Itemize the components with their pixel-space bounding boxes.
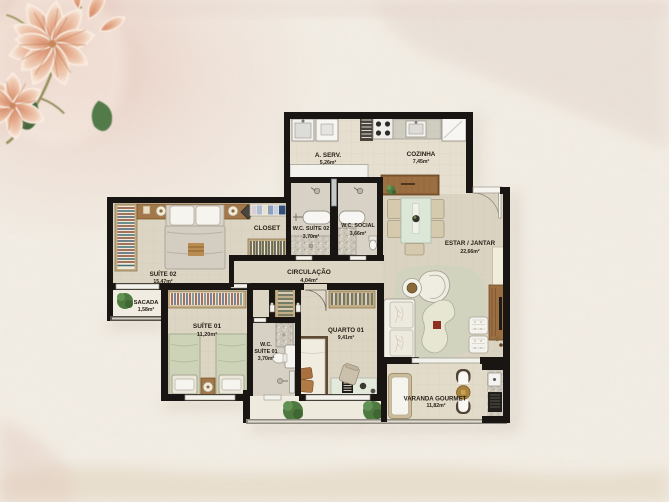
svg-text:QUARTO 01: QUARTO 01 bbox=[328, 327, 364, 334]
svg-text:15,47m²: 15,47m² bbox=[153, 279, 173, 285]
svg-text:A. SERV.: A. SERV. bbox=[315, 152, 342, 159]
svg-text:11,82m²: 11,82m² bbox=[426, 403, 445, 409]
svg-text:3,70m²: 3,70m² bbox=[303, 234, 320, 240]
svg-text:5,26m²: 5,26m² bbox=[320, 160, 337, 166]
svg-text:CIRCULAÇÃO: CIRCULAÇÃO bbox=[287, 267, 331, 276]
svg-text:SUÍTE 01: SUÍTE 01 bbox=[193, 321, 222, 330]
svg-text:11,20m²: 11,20m² bbox=[197, 331, 217, 338]
svg-text:9,41m²: 9,41m² bbox=[338, 335, 355, 341]
svg-text:W.C.: W.C. bbox=[260, 342, 272, 348]
svg-text:W.C. SUÍTE 02: W.C. SUÍTE 02 bbox=[293, 224, 330, 232]
svg-text:CLOSET: CLOSET bbox=[254, 225, 280, 232]
svg-text:COZINHA: COZINHA bbox=[407, 151, 436, 158]
svg-text:1,58m²: 1,58m² bbox=[138, 307, 155, 313]
svg-text:7,45m²: 7,45m² bbox=[413, 159, 430, 165]
svg-text:W.C. SOCIAL: W.C. SOCIAL bbox=[341, 223, 375, 229]
svg-text:SUÍTE 01: SUÍTE 01 bbox=[254, 347, 277, 355]
svg-text:3,70m²: 3,70m² bbox=[258, 356, 275, 362]
svg-text:SACADA: SACADA bbox=[134, 300, 160, 306]
svg-text:22,66m²: 22,66m² bbox=[460, 249, 480, 255]
svg-text:3,66m²: 3,66m² bbox=[350, 231, 367, 237]
svg-text:ESTAR / JANTAR: ESTAR / JANTAR bbox=[445, 240, 496, 247]
svg-text:SUÍTE 02: SUÍTE 02 bbox=[150, 270, 177, 278]
svg-text:4,04m²: 4,04m² bbox=[300, 277, 318, 284]
svg-text:VARANDA GOURMET: VARANDA GOURMET bbox=[404, 396, 467, 403]
